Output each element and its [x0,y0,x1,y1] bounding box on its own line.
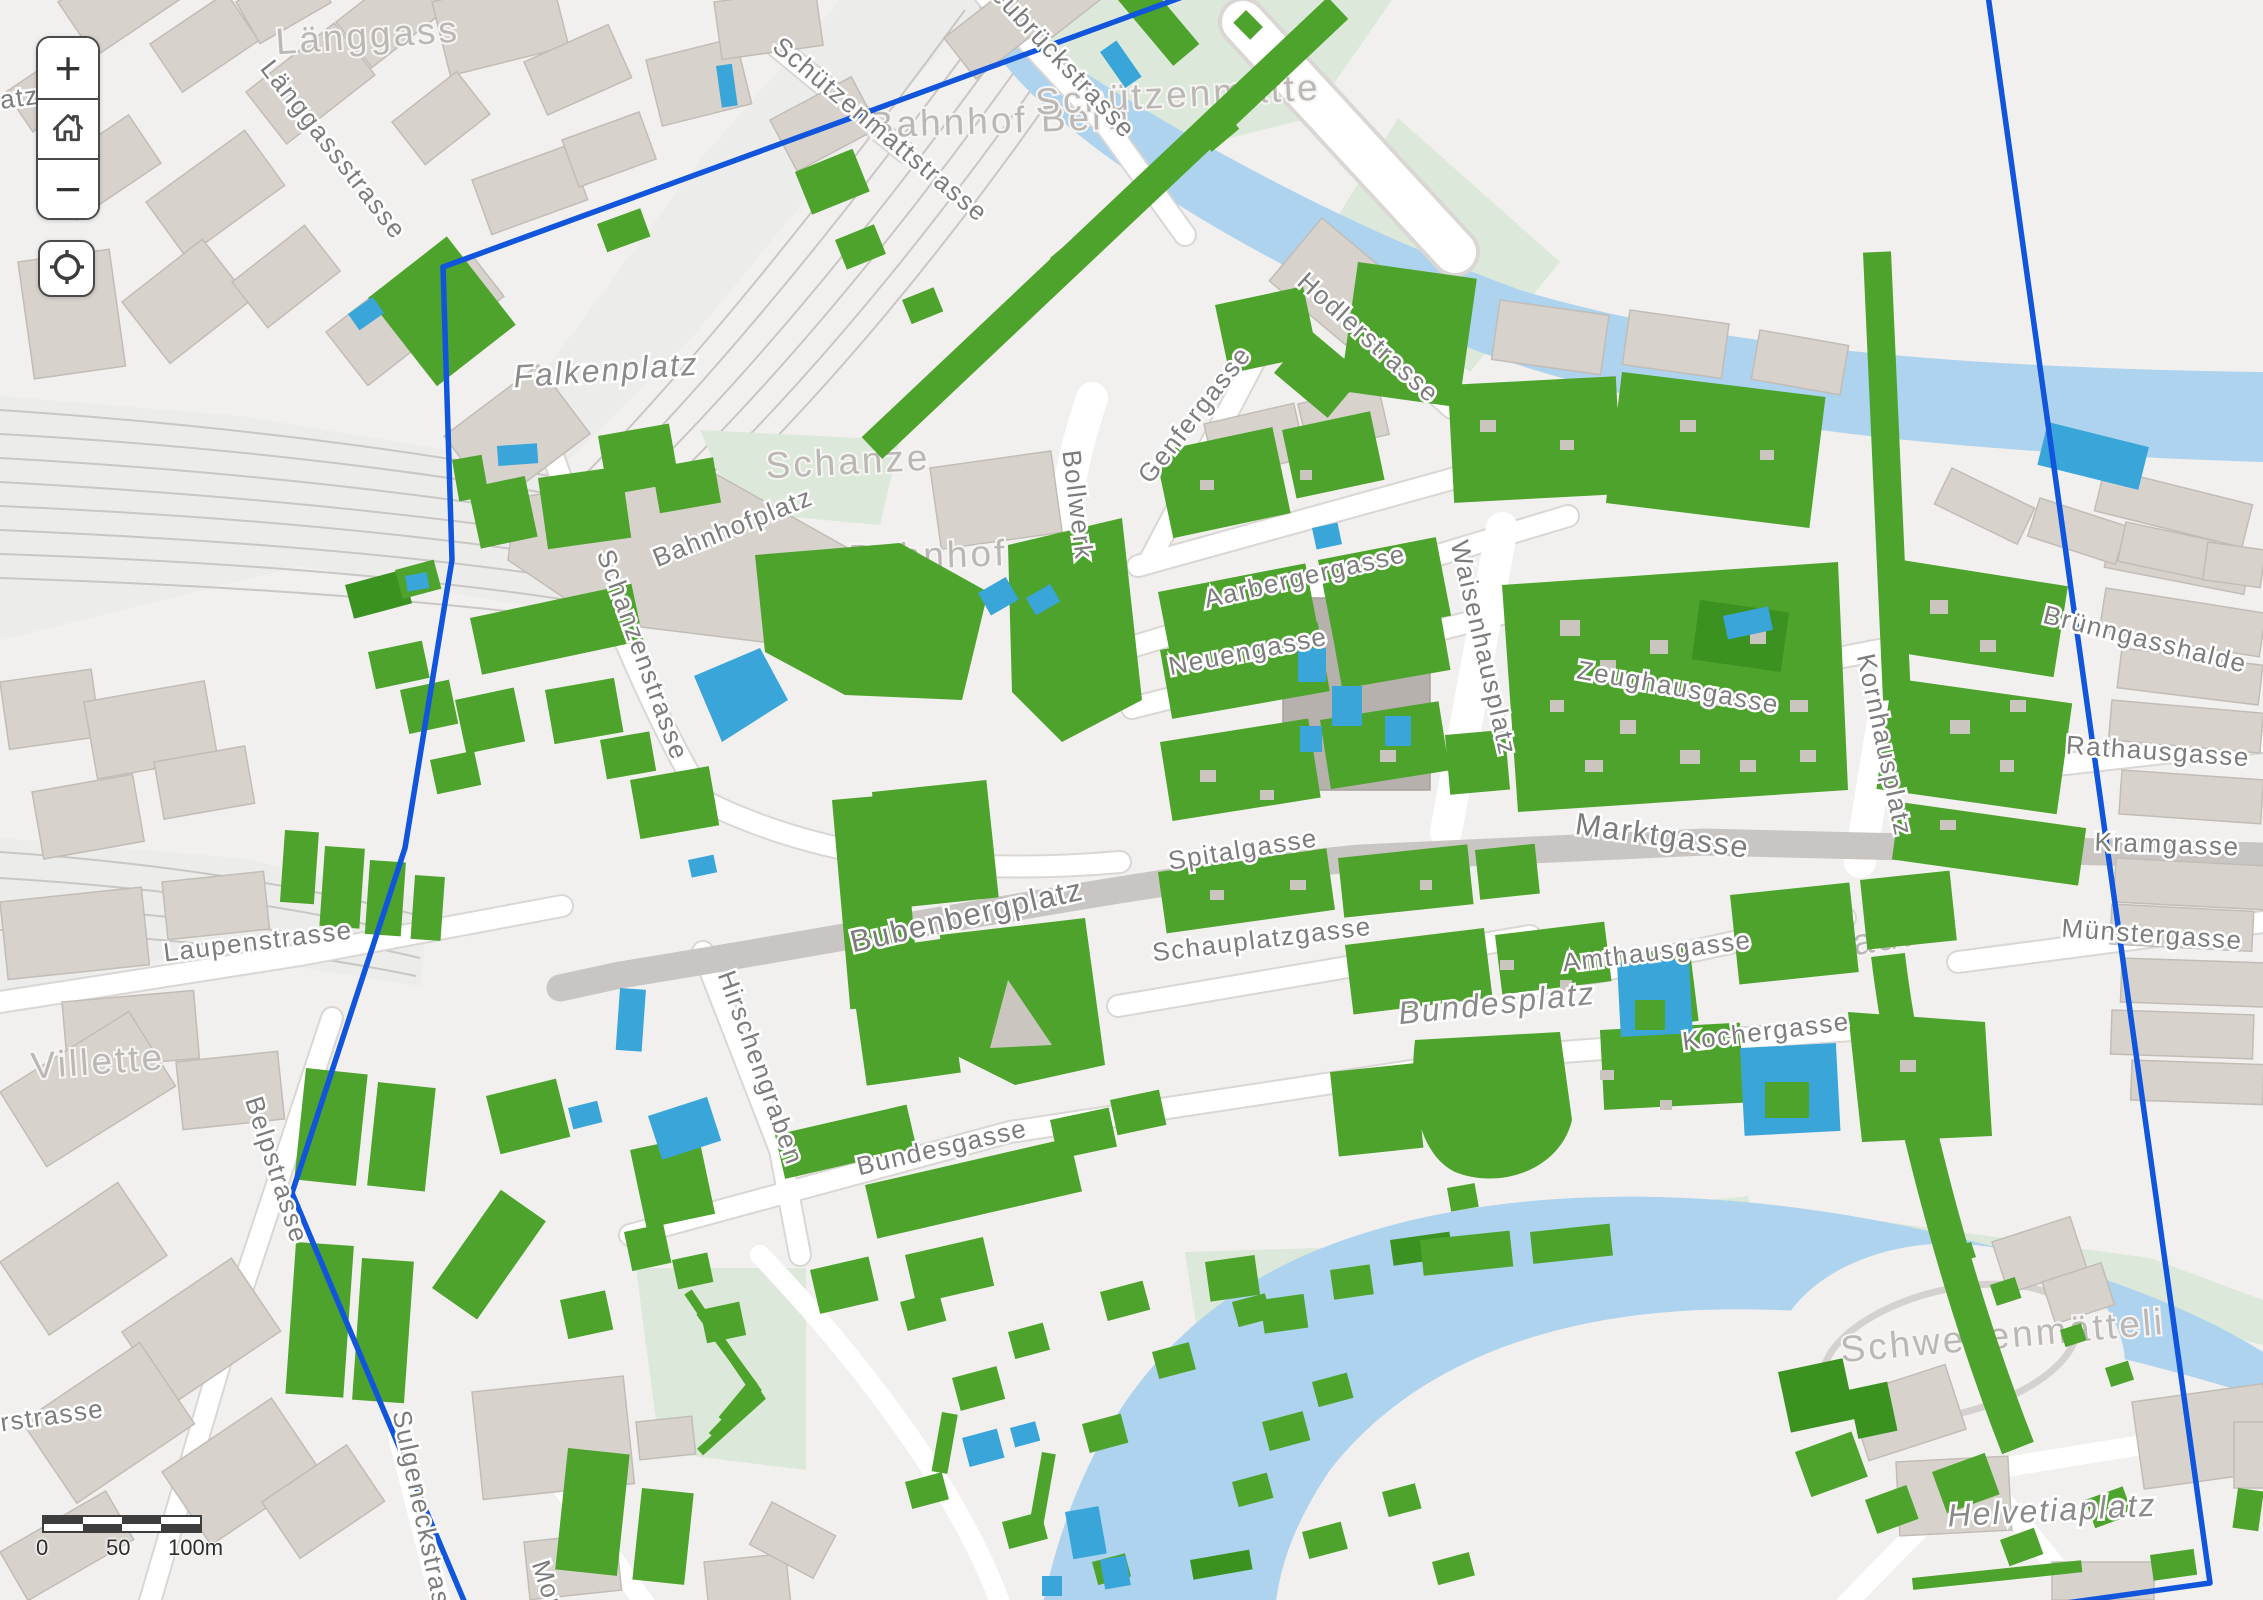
scale-label-100: 100m [168,1535,223,1561]
scale-label-0: 0 [36,1535,48,1561]
home-icon [49,102,87,156]
zoom-in-button[interactable]: + [38,38,98,98]
map-canvas[interactable]: Länggass Schanze Bahnhof Bahnhof Bern Vi… [0,0,2263,1600]
map-viewport: Länggass Schanze Bahnhof Bahnhof Bern Vi… [0,0,2263,1600]
home-button[interactable] [38,98,98,158]
casino-green [1848,1012,1992,1142]
zoom-control: + − [36,36,100,220]
scale-bar: 0 50 100m [42,1515,202,1559]
bundeshaus-green [1413,1032,1572,1179]
geolocate-button[interactable] [38,240,95,297]
scale-label-50: 50 [106,1535,130,1561]
street-label: Kramgasse [2094,826,2240,861]
district-label: Schanze [764,437,931,487]
scale-bar-segments [42,1515,202,1533]
zoom-out-button[interactable]: − [38,158,98,218]
crosshair-icon [47,247,87,290]
